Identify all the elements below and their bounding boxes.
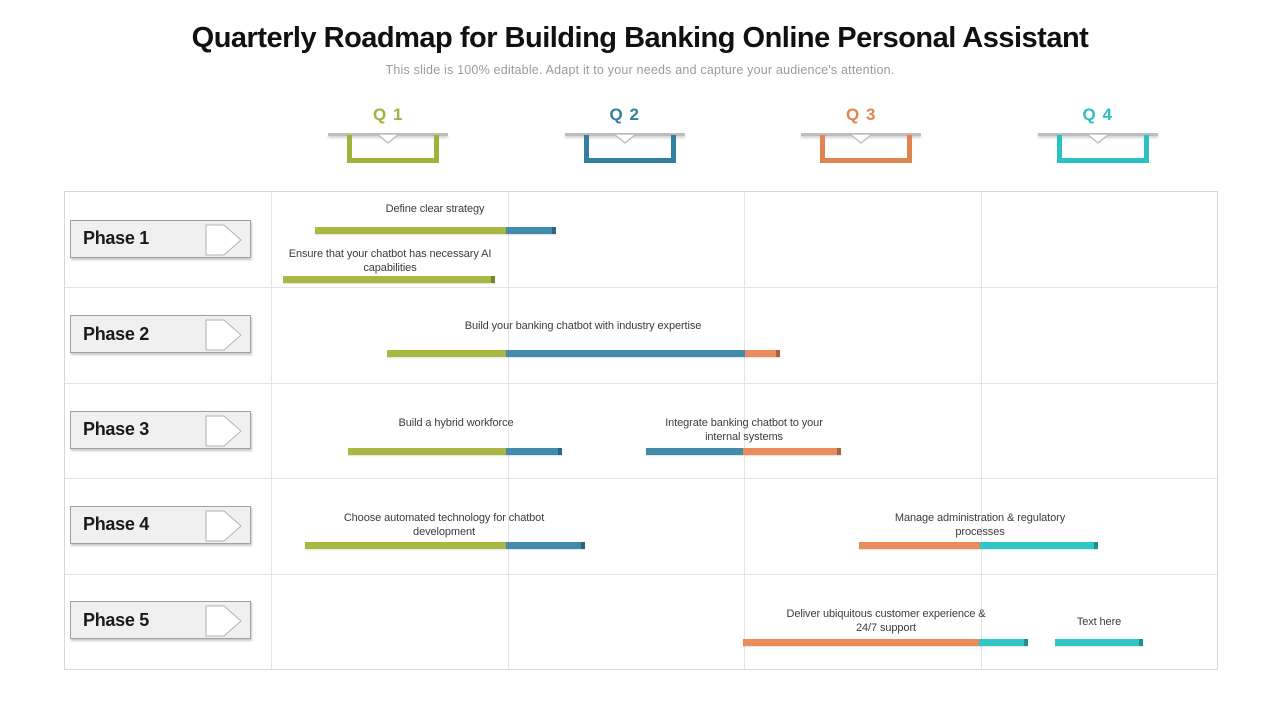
quarter-header-4: Q 4 (1018, 105, 1178, 125)
task-label: Text here (1049, 615, 1149, 629)
notch-svg (613, 132, 637, 145)
bar-segment-blue (506, 227, 556, 234)
quarter-bracket (815, 133, 907, 167)
bar-segment-blue (506, 350, 745, 357)
grid-vline (981, 192, 982, 669)
quarter-header-2: Q 2 (545, 105, 705, 125)
phase-label: Phase 4 (83, 514, 149, 535)
phase-button-3[interactable]: Phase 3 (70, 411, 251, 449)
bar-segment-orange (859, 542, 980, 549)
phase-button-5[interactable]: Phase 5 (70, 601, 251, 639)
phase-label: Phase 5 (83, 610, 149, 631)
bar-segment-green (305, 542, 506, 549)
bar-segment-blue (646, 448, 743, 455)
quarter-header-3: Q 3 (781, 105, 941, 125)
bar-segment-orange (745, 350, 780, 357)
quarter-bracket (579, 133, 671, 167)
bracket-notch-icon (613, 132, 637, 150)
bar-segment-blue (506, 542, 585, 549)
task-label: Ensure that your chatbot has necessary A… (275, 247, 505, 276)
grid-hline (65, 478, 1217, 479)
grid-hline (65, 574, 1217, 575)
phase-arrow-icon (205, 510, 243, 542)
task-label: Integrate banking chatbot to your intern… (652, 416, 837, 445)
bracket-notch-icon (849, 132, 873, 150)
bracket-notch-icon (1086, 132, 1110, 150)
phase-arrow-icon (205, 224, 243, 256)
phase-label: Phase 2 (83, 324, 149, 345)
bar-segment-teal (1055, 639, 1143, 646)
phase-arrow-icon (205, 415, 243, 447)
task-label: Define clear strategy (315, 202, 555, 216)
quarter-header-1: Q 1 (308, 105, 468, 125)
grid-hline (65, 287, 1217, 288)
notch-svg (376, 132, 400, 145)
quarter-label: Q 3 (781, 105, 941, 125)
slide-title: Quarterly Roadmap for Building Banking O… (0, 22, 1280, 55)
quarter-label: Q 4 (1018, 105, 1178, 125)
notch-svg (1086, 132, 1110, 145)
phase-button-2[interactable]: Phase 2 (70, 315, 251, 353)
task-label: Deliver ubiquitous customer experience &… (786, 607, 986, 636)
bar-segment-teal (979, 639, 1028, 646)
phase-button-1[interactable]: Phase 1 (70, 220, 251, 258)
bracket-notch-icon (376, 132, 400, 150)
notch-svg (849, 132, 873, 145)
bar-segment-green (387, 350, 506, 357)
bar-segment-orange (743, 448, 841, 455)
phase-button-4[interactable]: Phase 4 (70, 506, 251, 544)
grid-hline (65, 383, 1217, 384)
task-label: Build a hybrid workforce (396, 416, 516, 430)
grid-vline (271, 192, 272, 669)
bar-segment-orange (743, 639, 979, 646)
quarter-label: Q 1 (308, 105, 468, 125)
bar-segment-green (315, 227, 506, 234)
quarter-bracket (342, 133, 434, 167)
bar-segment-green (348, 448, 506, 455)
bar-segment-green (283, 276, 495, 283)
slide-subtitle: This slide is 100% editable. Adapt it to… (0, 63, 1280, 77)
quarter-label: Q 2 (545, 105, 705, 125)
bar-segment-teal (980, 542, 1098, 549)
grid-vline (508, 192, 509, 669)
bar-segment-blue (506, 448, 562, 455)
task-label: Manage administration & regulatory proce… (878, 511, 1083, 540)
phase-label: Phase 1 (83, 228, 149, 249)
phase-label: Phase 3 (83, 419, 149, 440)
phase-arrow-icon (205, 319, 243, 351)
task-label: Build your banking chatbot with industry… (418, 319, 748, 333)
quarter-bracket (1052, 133, 1144, 167)
task-label: Choose automated technology for chatbot … (332, 511, 557, 540)
slide-canvas: Quarterly Roadmap for Building Banking O… (0, 0, 1280, 720)
phase-arrow-icon (205, 605, 243, 637)
